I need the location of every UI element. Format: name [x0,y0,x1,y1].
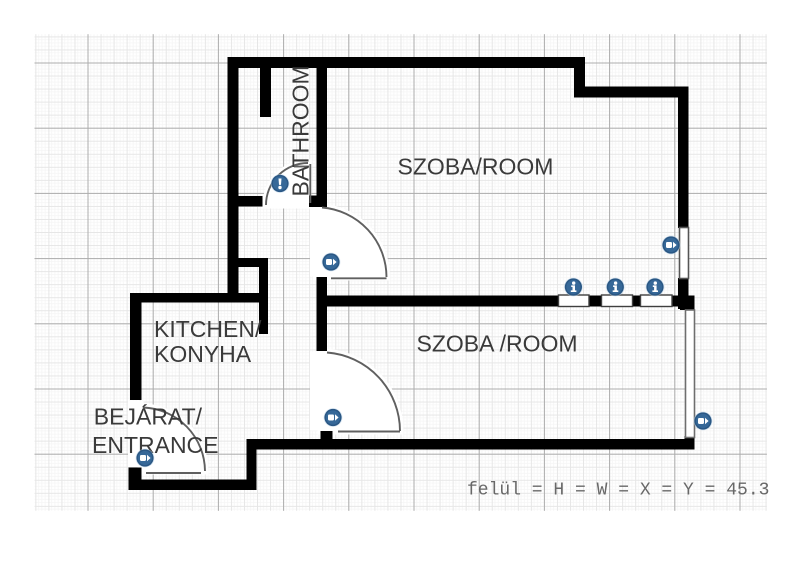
svg-text:SZOBA /ROOM: SZOBA /ROOM [416,331,577,357]
svg-text:SZOBA/ROOM: SZOBA/ROOM [398,154,554,180]
svg-text:KITCHEN/: KITCHEN/ [154,316,262,342]
svg-text:KONYHA: KONYHA [154,341,252,367]
svg-text:ENTRANCE: ENTRANCE [92,432,219,458]
svg-text:BEJÁRAT/: BEJÁRAT/ [94,404,203,430]
svg-text:BATHROOM: BATHROOM [288,65,314,196]
svg-text:felül = H = W = X = Y = 45.3: felül = H = W = X = Y = 45.3 [467,481,769,501]
